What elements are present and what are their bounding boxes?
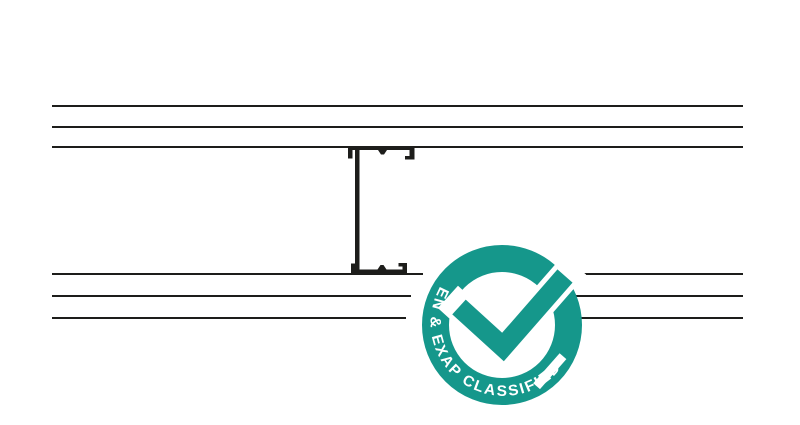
board-lines (52, 106, 743, 318)
c-stud-section (348, 146, 415, 274)
certification-badge: EN & EXAP CLASSIFIED (427, 259, 569, 400)
partition-section-image: EN & EXAP CLASSIFIED (0, 0, 800, 425)
partition-section-diagram: EN & EXAP CLASSIFIED (0, 0, 800, 425)
